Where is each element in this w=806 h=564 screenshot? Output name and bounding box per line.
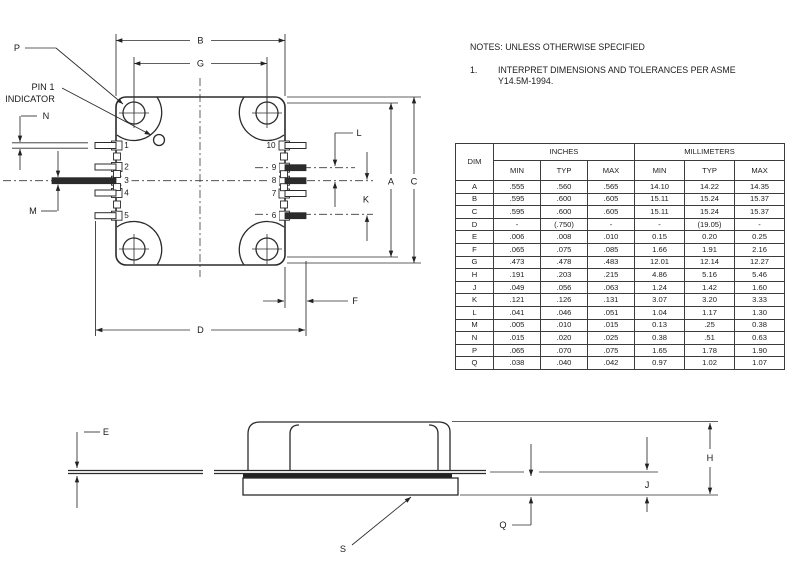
svg-text:8: 8 [272, 176, 277, 185]
label-F: F [352, 296, 358, 306]
side-leads [68, 471, 486, 474]
label-N: N [43, 111, 50, 121]
base-plate [243, 478, 458, 495]
table-row: C.595.600.60515.1115.2415.37 [456, 206, 785, 219]
table-subheaders: MIN TYP MAX MIN TYP MAX [456, 161, 785, 181]
dimension-H [452, 422, 718, 496]
drawing-sheet: B G A C L K F D N M P PIN 1 INDICATOR 1 … [0, 0, 806, 564]
dimension-F [263, 261, 348, 336]
label-H: H [707, 453, 714, 463]
table-body: A.555.560.56514.1014.2214.35B.595.600.60… [456, 181, 785, 370]
label-G: G [197, 59, 204, 69]
table-row: M.005.010.0150.13.250.38 [456, 319, 785, 332]
table-row: G.473.478.48312.0112.1412.27 [456, 256, 785, 269]
label-J: J [645, 480, 650, 490]
side-labels: E H J Q S [103, 427, 713, 554]
callout-S-leader [352, 497, 411, 545]
notes-block: NOTES: UNLESS OTHERWISE SPECIFIED 1. INT… [470, 42, 736, 87]
table-row: A.555.560.56514.1014.2214.35 [456, 181, 785, 194]
label-pin1-indicator2: INDICATOR [5, 94, 55, 104]
dimension-C [287, 97, 421, 263]
note-number: 1. [470, 65, 498, 87]
label-pin1-indicator: PIN 1 [32, 82, 55, 92]
note-text: INTERPRET DIMENSIONS AND TOLERANCES PER … [498, 65, 736, 87]
svg-text:1: 1 [124, 141, 129, 150]
table-row: K.121.126.1313.073.203.33 [456, 294, 785, 307]
label-L: L [356, 128, 361, 138]
table-row: Q.038.040.0420.971.021.07 [456, 357, 785, 370]
label-K: K [363, 195, 370, 205]
label-D: D [197, 325, 204, 335]
dimension-table: DIM INCHES MILLIMETERS MIN TYP MAX MIN T… [455, 143, 785, 370]
note-item-1: 1. INTERPRET DIMENSIONS AND TOLERANCES P… [470, 65, 736, 87]
label-S: S [340, 544, 346, 554]
dimension-Q [512, 444, 531, 525]
svg-text:9: 9 [272, 163, 277, 172]
table-row: E.006.008.0100.150.200.25 [456, 231, 785, 244]
label-B: B [197, 36, 203, 46]
table-row: F.065.075.0851.661.912.16 [456, 243, 785, 256]
label-P: P [14, 43, 20, 53]
table-row: D-(.750)--(19.05)- [456, 218, 785, 231]
label-E: E [103, 427, 109, 437]
col-header-inches: INCHES [494, 144, 635, 161]
side-body [243, 422, 458, 495]
pin1-indicator-leader [62, 88, 151, 135]
col-header-dim: DIM [456, 144, 494, 181]
table-row: B.595.600.60515.1115.2415.37 [456, 193, 785, 206]
svg-text:5: 5 [124, 211, 129, 220]
top-view-drawing: B G A C L K F D N M P PIN 1 INDICATOR 1 … [0, 0, 460, 395]
svg-text:2: 2 [124, 163, 129, 172]
table-row: J.049.056.0631.241.421.60 [456, 281, 785, 294]
label-A: A [388, 177, 395, 187]
notes-title: NOTES: UNLESS OTHERWISE SPECIFIED [470, 42, 736, 53]
table-row: N.015.020.0250.38.510.63 [456, 332, 785, 345]
table-row: H.191.203.2154.865.165.46 [456, 269, 785, 282]
svg-text:3: 3 [124, 176, 129, 185]
table-row: P.065.070.0751.651.781.90 [456, 344, 785, 357]
svg-text:10: 10 [266, 141, 276, 150]
table-row: L.041.046.0511.041.171.30 [456, 306, 785, 319]
col-header-millimeters: MILLIMETERS [635, 144, 785, 161]
svg-text:6: 6 [272, 211, 277, 220]
dimension-L [335, 133, 353, 207]
label-M: M [29, 206, 37, 216]
dimension-J [490, 437, 658, 512]
pin1-indicator-dot [154, 135, 165, 146]
table-header-groups: DIM INCHES MILLIMETERS [456, 144, 785, 161]
dimension-labels: B G A C L K F D N M P PIN 1 INDICATOR [5, 36, 418, 336]
label-C: C [411, 177, 418, 187]
label-Q: Q [499, 520, 506, 530]
svg-text:7: 7 [272, 189, 277, 198]
side-view-drawing: E H J Q S [0, 395, 806, 564]
svg-text:4: 4 [124, 189, 129, 198]
